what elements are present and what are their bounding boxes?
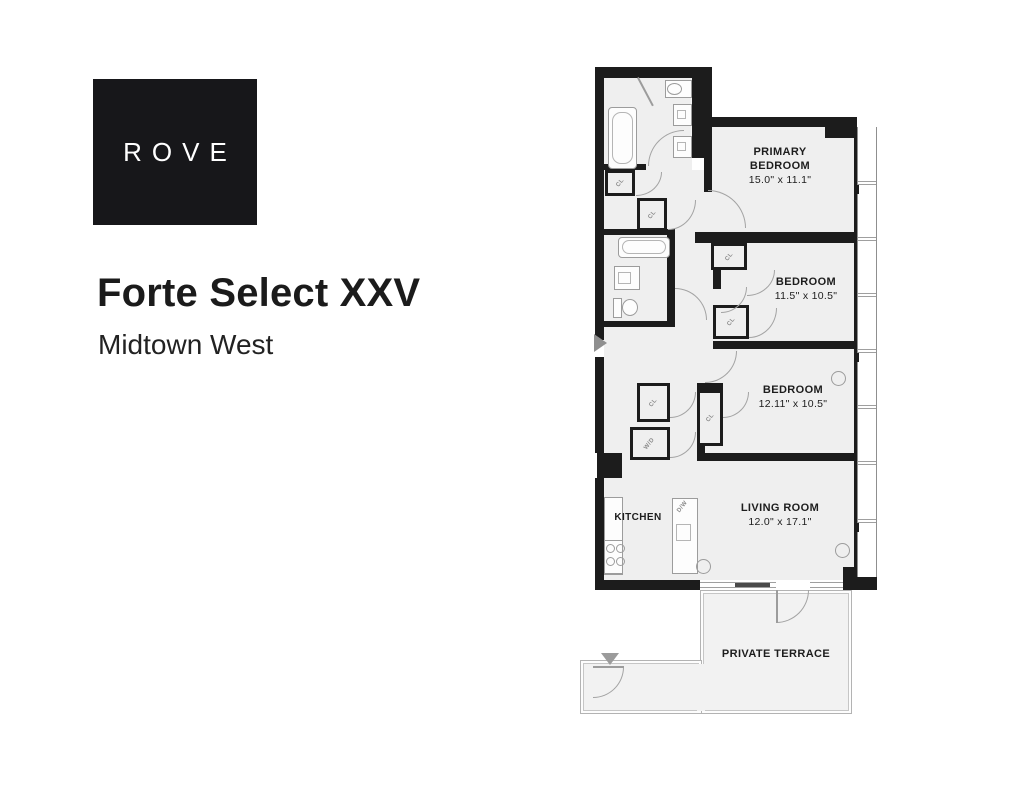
toilet-tank xyxy=(613,298,622,318)
island-sink xyxy=(676,524,691,541)
room-label-primary-bedroom: PRIMARY BEDROOM 15.0" x 11.1" xyxy=(730,146,830,187)
room-name: BEDROOM xyxy=(756,276,856,290)
room-label-bedroom-3: BEDROOM 12.11" x 10.5" xyxy=(743,384,843,411)
wall-segment xyxy=(595,67,604,340)
window-mullion xyxy=(858,519,876,523)
closet-label: CL xyxy=(647,209,657,220)
window-nub xyxy=(854,185,859,194)
room-label-kitchen: KITCHEN xyxy=(606,512,670,525)
wall-segment xyxy=(704,127,712,192)
ceiling-light xyxy=(835,543,850,558)
room-name: BEDROOM xyxy=(743,384,843,398)
sink-basin xyxy=(618,272,631,284)
wall-segment xyxy=(825,117,857,138)
closet-label: CL xyxy=(724,251,734,262)
wall-segment xyxy=(597,453,622,478)
window-mullion xyxy=(858,461,876,465)
slider-door xyxy=(735,583,770,587)
room-name: PRIVATE TERRACE xyxy=(710,648,842,662)
washer-dryer-closet: W/D xyxy=(630,427,670,460)
wall-segment xyxy=(697,446,705,453)
room-label-living-room: LIVING ROOM 12.0" x 17.1" xyxy=(720,502,840,529)
window-mullion xyxy=(858,293,876,297)
terrace-left-door-leaf xyxy=(593,666,624,668)
wall-segment xyxy=(697,453,857,461)
wall-segment xyxy=(695,232,857,243)
toilet xyxy=(622,299,638,316)
closet: CL xyxy=(637,383,670,422)
logo-text: ROVE xyxy=(113,137,237,168)
stove-burner xyxy=(616,544,625,553)
window-strip xyxy=(857,127,877,577)
window-nub xyxy=(854,523,859,532)
terrace-entry-arrow-icon xyxy=(601,653,619,665)
closet-label: CL xyxy=(615,178,625,189)
window-mullion xyxy=(858,405,876,409)
bathtub-inner xyxy=(622,240,666,254)
sink-basin xyxy=(677,110,686,119)
terrace-door-leaf xyxy=(776,590,778,623)
wall-segment xyxy=(598,67,712,78)
room-label-private-terrace: PRIVATE TERRACE xyxy=(710,648,842,662)
room-dims: 12.0" x 17.1" xyxy=(720,516,840,529)
room-label-bedroom-2: BEDROOM 11.5" x 10.5" xyxy=(756,276,856,303)
floorplan: CL CL CL CL CL CL W/D xyxy=(560,40,1020,760)
window-mullion xyxy=(858,349,876,353)
window-nub xyxy=(854,353,859,362)
stove-burner xyxy=(606,544,615,553)
room-dims: 12.11" x 10.5" xyxy=(743,398,843,411)
closet-label: CL xyxy=(648,397,658,408)
closet: CL xyxy=(711,243,747,270)
room-dims: 15.0" x 11.1" xyxy=(730,174,830,187)
closet-label: CL xyxy=(705,413,715,424)
closet-label: CL xyxy=(726,317,736,328)
stove-burner xyxy=(606,557,615,566)
entry-arrow-icon xyxy=(594,334,607,352)
wall-segment xyxy=(713,341,857,349)
room-dims: 11.5" x 10.5" xyxy=(756,290,856,303)
glass-wall xyxy=(810,582,843,588)
wall-segment xyxy=(692,78,704,158)
washer-dryer-label: W/D xyxy=(644,436,657,450)
wall-segment xyxy=(595,478,604,580)
page: ROVE Forte Select XXV Midtown West xyxy=(0,0,1020,800)
ceiling-light xyxy=(696,559,711,574)
bathtub-inner xyxy=(612,112,633,164)
closet: CL xyxy=(697,390,723,446)
room-name: PRIMARY BEDROOM xyxy=(730,146,830,174)
room-name: KITCHEN xyxy=(606,512,670,525)
toilet-bowl xyxy=(667,83,682,95)
closet: CL xyxy=(637,198,667,231)
closet: CL xyxy=(605,170,635,196)
page-subtitle: Midtown West xyxy=(98,329,273,361)
wall-segment xyxy=(604,321,675,327)
terrace-join xyxy=(697,664,705,711)
page-title: Forte Select XXV xyxy=(97,271,420,316)
sink-basin xyxy=(677,142,686,151)
wall-segment xyxy=(595,357,604,453)
window-mullion xyxy=(858,237,876,241)
rove-logo: ROVE xyxy=(93,79,257,225)
stove-burner xyxy=(616,557,625,566)
wall-segment xyxy=(595,580,700,590)
room-name: LIVING ROOM xyxy=(720,502,840,516)
window-mullion xyxy=(858,181,876,185)
